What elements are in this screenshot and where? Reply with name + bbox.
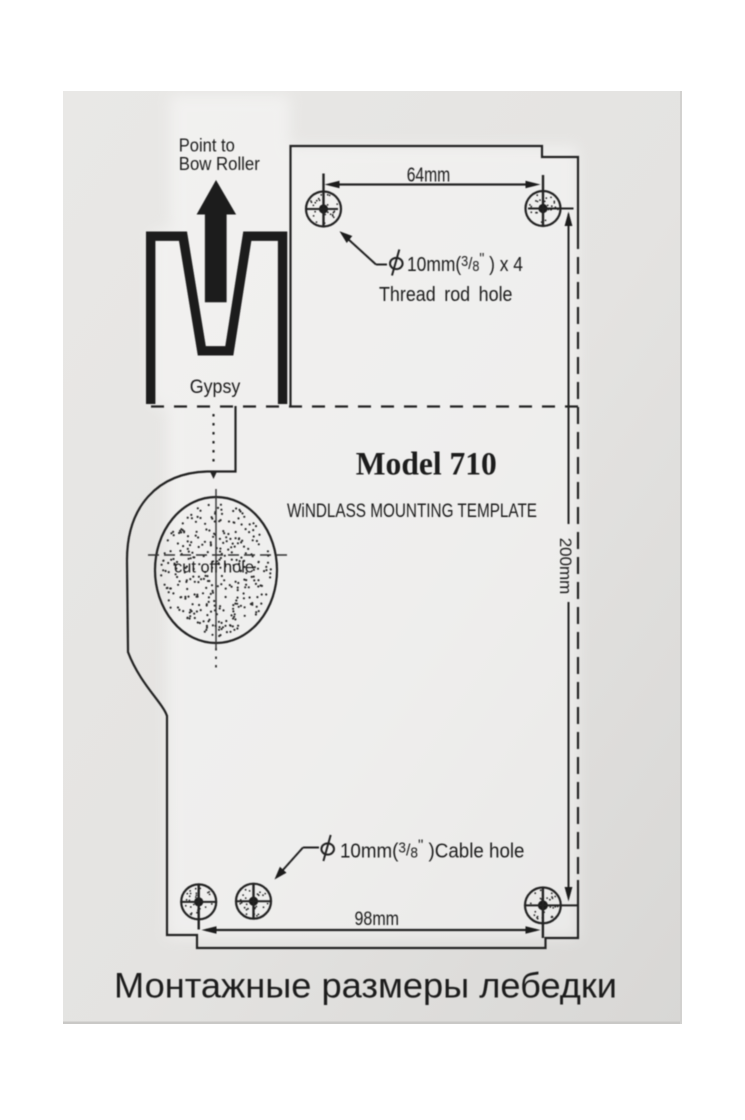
svg-text:98mm: 98mm — [355, 909, 400, 930]
svg-text:Thread rod hole: Thread rod hole — [379, 284, 513, 306]
svg-text:Model 710: Model 710 — [356, 447, 497, 483]
svg-text:Gypsy: Gypsy — [190, 377, 241, 398]
svg-text:WiNDLASS MOUNTING TEMPLATE: WiNDLASS MOUNTING TEMPLATE — [287, 501, 537, 522]
svg-text:64mm: 64mm — [407, 165, 451, 187]
svg-text:Bow Roller: Bow Roller — [179, 154, 260, 174]
svg-text:Монтажные размеры лебедки: Монтажные размеры лебедки — [114, 967, 617, 1006]
svg-text:10mm(3/8" )Cable hole: 10mm(3/8" )Cable hole — [340, 838, 525, 863]
svg-text:200mm: 200mm — [556, 538, 575, 595]
svg-text:Point to: Point to — [179, 135, 235, 155]
svg-text:cut off hole: cut off hole — [174, 559, 254, 577]
